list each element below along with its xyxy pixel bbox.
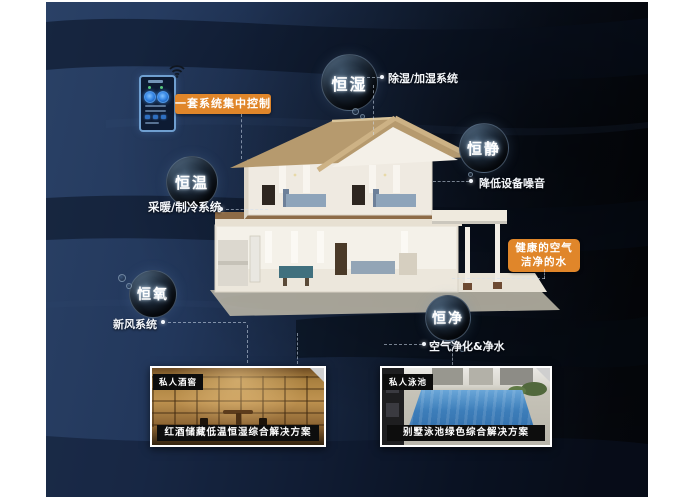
phone-status-led [160, 86, 163, 89]
corner-fold [536, 368, 550, 382]
connector-line [433, 181, 469, 182]
connector-dot [422, 342, 426, 346]
desc-fresh-air-system: 新风系统 [113, 316, 157, 332]
desc-hvac-system: 采暖/制冷系统 [148, 199, 221, 215]
connector-line [373, 85, 374, 135]
window [386, 403, 399, 417]
photo-tag: 私人泳池 [383, 374, 433, 390]
desc-purification-system: 空气净化&净水 [429, 338, 505, 354]
phone-dial-left [144, 91, 156, 103]
phone-header-bar [148, 80, 163, 83]
phone-dial-right [157, 91, 169, 103]
connector-line [226, 209, 268, 210]
bubble-label: 恒氧 [137, 284, 169, 304]
photo-tag: 私人酒窖 [153, 374, 203, 390]
phone-button [153, 115, 158, 119]
healthy-line2: 洁净的水 [508, 255, 580, 269]
corner-fold [310, 368, 324, 382]
phone-button [145, 115, 150, 119]
connector-line [168, 322, 246, 323]
mini-bubble [468, 172, 473, 177]
mini-bubble [126, 283, 132, 289]
connector-line [362, 77, 380, 78]
connector-dot [161, 320, 165, 324]
connector-line [297, 333, 298, 364]
connector-line [384, 344, 422, 345]
smart-home-infographic: 一套系统集中控制 健康的空气 洁净的水 恒湿 恒静 恒温 恒氧 恒净 除湿/加湿… [0, 0, 700, 497]
pool-photo-card: 私人泳池 别墅泳池绿色综合解决方案 [380, 366, 552, 447]
central-control-callout: 一套系统集中控制 [175, 94, 271, 114]
healthy-line1: 健康的空气 [508, 241, 580, 255]
bubble-label: 恒静 [467, 138, 501, 159]
photo-caption: 红酒储藏低温恒湿综合解决方案 [157, 425, 319, 441]
bubble-label: 恒湿 [331, 71, 367, 95]
bubble-label: 恒温 [175, 172, 209, 193]
mini-bubble [352, 108, 359, 115]
mini-bubble [118, 274, 126, 282]
connector-line [544, 269, 545, 279]
connector-line [241, 114, 242, 159]
connector-line [247, 325, 248, 363]
smart-control-phone [139, 75, 176, 132]
connector-dot [469, 179, 473, 183]
bubble-constant-quiet: 恒静 [459, 123, 509, 173]
connector-line [452, 278, 545, 279]
phone-text-row [145, 122, 159, 124]
mini-bubble [360, 114, 365, 119]
phone-text-row [145, 110, 166, 112]
healthy-air-water-callout: 健康的空气 洁净的水 [508, 239, 580, 272]
phone-text-row [145, 105, 166, 107]
connector-dot [380, 75, 384, 79]
background-building [469, 368, 493, 385]
bubble-label: 恒净 [432, 308, 464, 328]
desc-noise-reduction: 降低设备噪音 [479, 175, 545, 191]
connector-dot [219, 207, 223, 211]
phone-button [161, 115, 166, 119]
connector-line [452, 349, 453, 365]
bubble-constant-oxygen: 恒氧 [129, 270, 177, 318]
bubble-constant-clean: 恒净 [425, 295, 471, 341]
wine-cellar-photo-card: 私人酒窖 红酒储藏低温恒湿综合解决方案 [150, 366, 326, 447]
bubble-constant-humidity: 恒湿 [321, 54, 378, 111]
background-building [432, 368, 462, 385]
wine-table-leg [236, 413, 241, 426]
villa-cutaway-illustration [195, 103, 565, 323]
phone-status-led [148, 86, 151, 89]
desc-humidity-system: 除湿/加湿系统 [388, 70, 458, 86]
photo-caption: 别墅泳池绿色综合解决方案 [387, 425, 545, 441]
